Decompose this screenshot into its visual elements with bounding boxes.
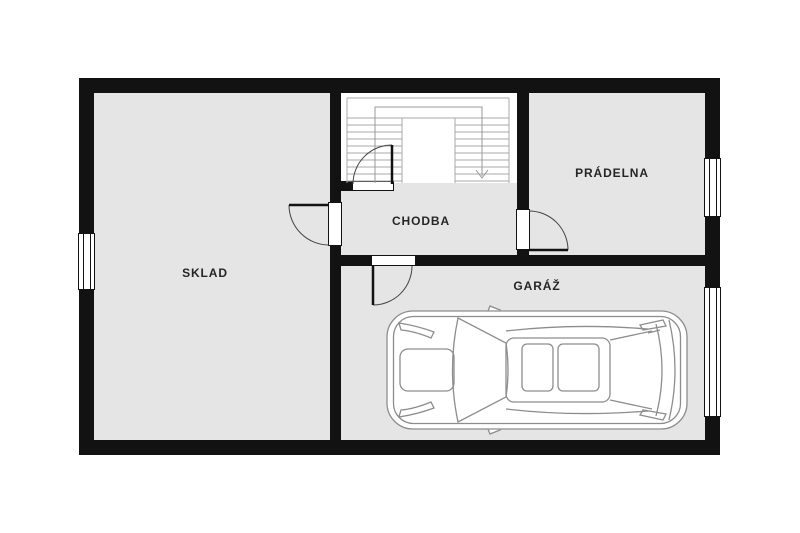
window-pane	[709, 288, 710, 416]
wall-sklad-divider	[330, 93, 341, 440]
window-pane	[716, 288, 717, 416]
door-opening-pradelna	[516, 209, 530, 250]
room-label-sklad: SKLAD	[182, 266, 228, 280]
window-pane	[83, 234, 84, 289]
wall-bottom	[79, 440, 720, 455]
stairwell-area	[341, 93, 517, 183]
garage-entry	[704, 287, 721, 417]
window-pane	[90, 234, 91, 289]
floor-plan: SKLAD CHODBA PRÁDELNA GARÁŽ	[0, 0, 800, 533]
room-label-chodba: CHODBA	[392, 214, 450, 228]
door-opening-sklad	[328, 202, 342, 246]
door-opening-stairs	[352, 181, 394, 191]
window-pradelna	[704, 158, 721, 217]
window-left	[78, 233, 95, 290]
window-pane	[709, 159, 710, 216]
room-label-pradelna: PRÁDELNA	[575, 166, 649, 180]
door-opening-garaz	[371, 255, 416, 266]
wall-top	[79, 78, 720, 93]
room-label-garaz: GARÁŽ	[513, 279, 560, 293]
window-pane	[716, 159, 717, 216]
